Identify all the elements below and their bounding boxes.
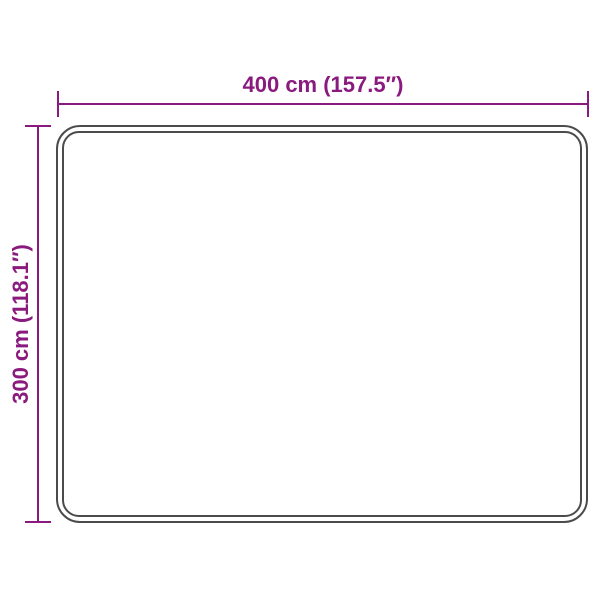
product-outline-inner — [62, 131, 582, 517]
width-dimension-label: 400 cm (157.5″) — [243, 74, 404, 96]
height-dimension-line — [37, 125, 39, 523]
width-dimension-left-tick — [57, 91, 59, 117]
width-dimension-right-tick — [587, 91, 589, 117]
product-dimension-diagram: 400 cm (157.5″) 300 cm (118.1″) — [0, 0, 600, 600]
height-dimension-bottom-tick — [25, 521, 51, 523]
height-dimension-top-tick — [25, 125, 51, 127]
product-outline-outer — [56, 125, 588, 523]
width-dimension-line — [57, 103, 589, 105]
height-dimension-label: 300 cm (118.1″) — [10, 244, 32, 404]
